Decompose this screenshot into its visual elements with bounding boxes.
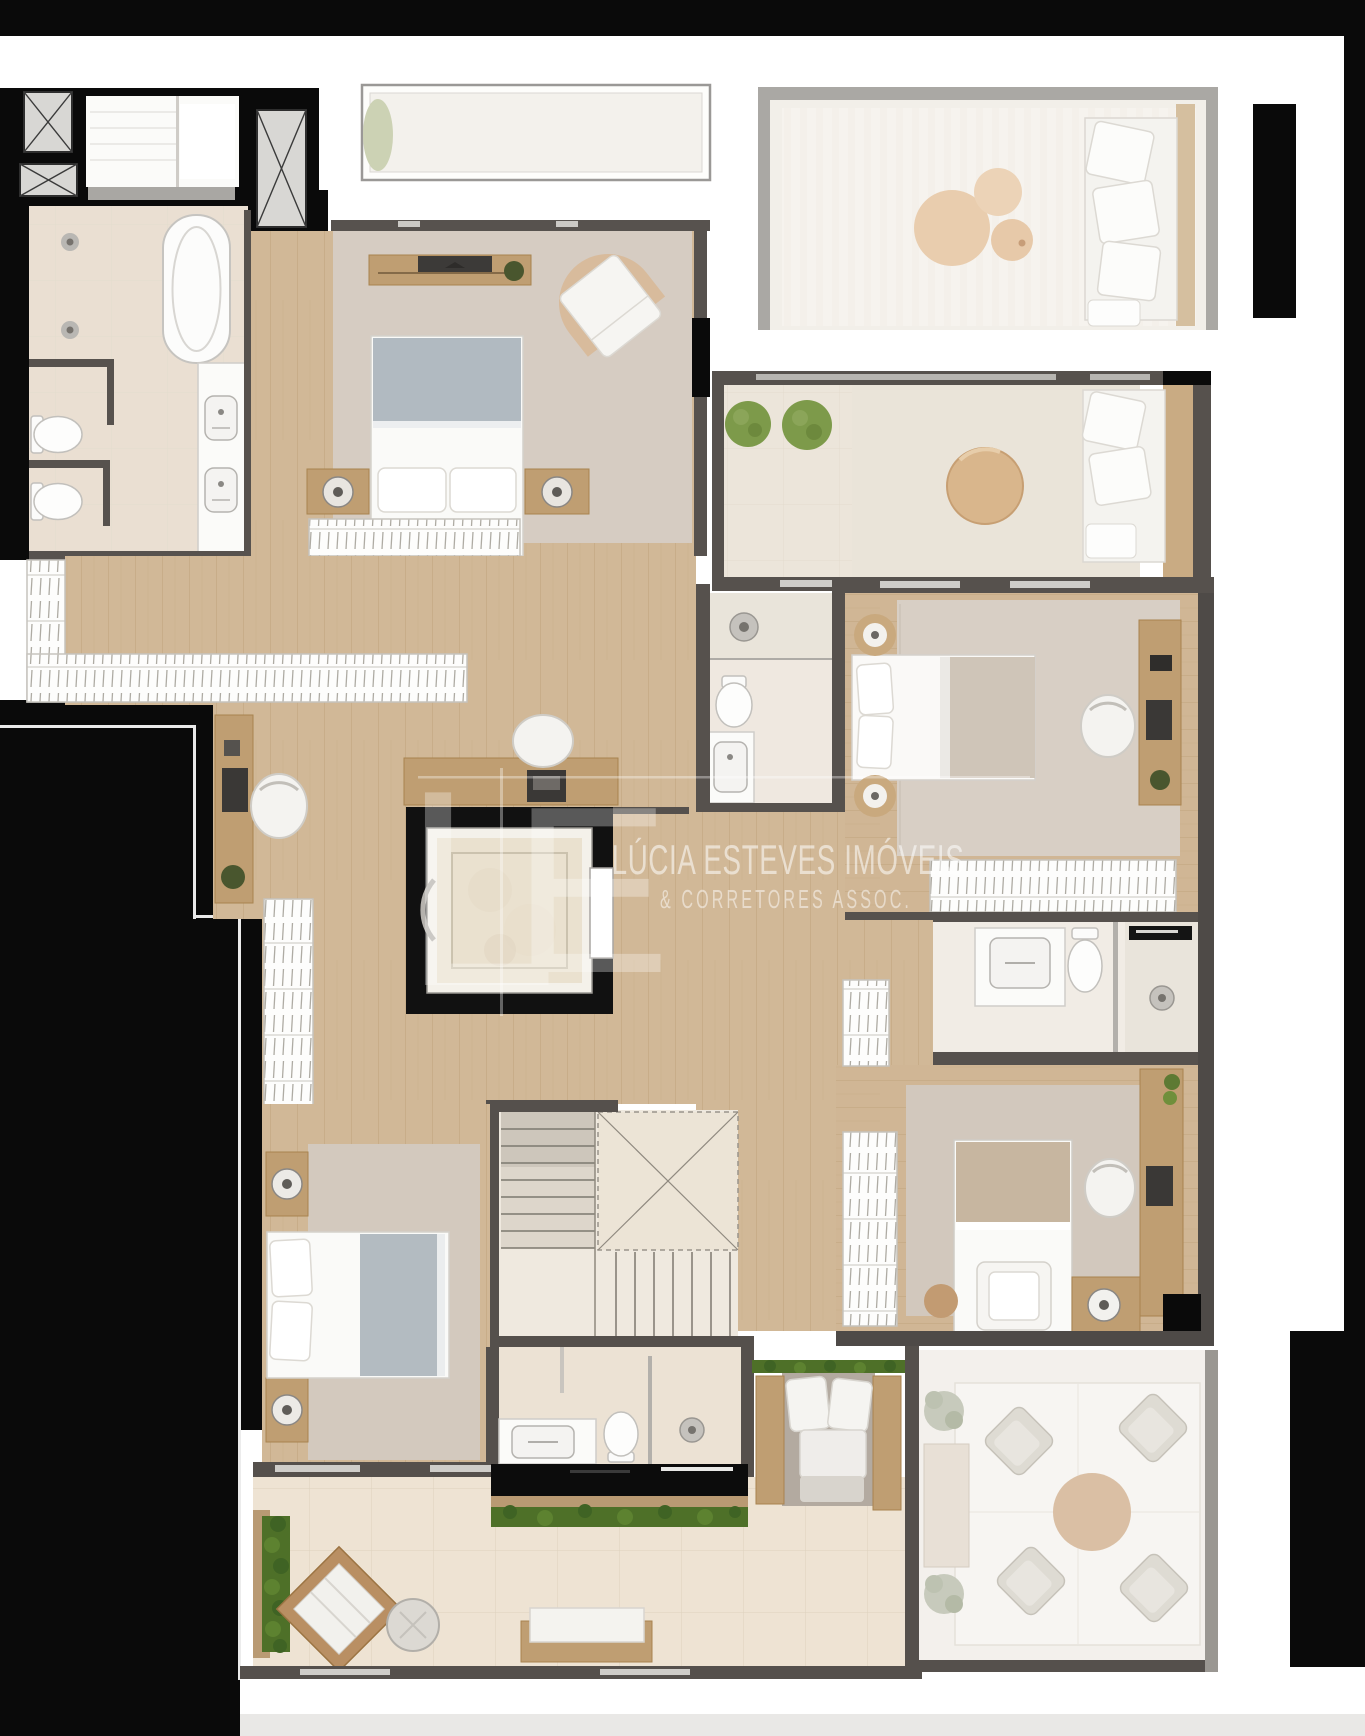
- svg-text:E: E: [512, 758, 671, 1023]
- svg-text:& CORRETORES ASSOC.: & CORRETORES ASSOC.: [660, 884, 912, 914]
- svg-text:LÚCIA ESTEVES IMÓVEIS: LÚCIA ESTEVES IMÓVEIS: [612, 836, 965, 883]
